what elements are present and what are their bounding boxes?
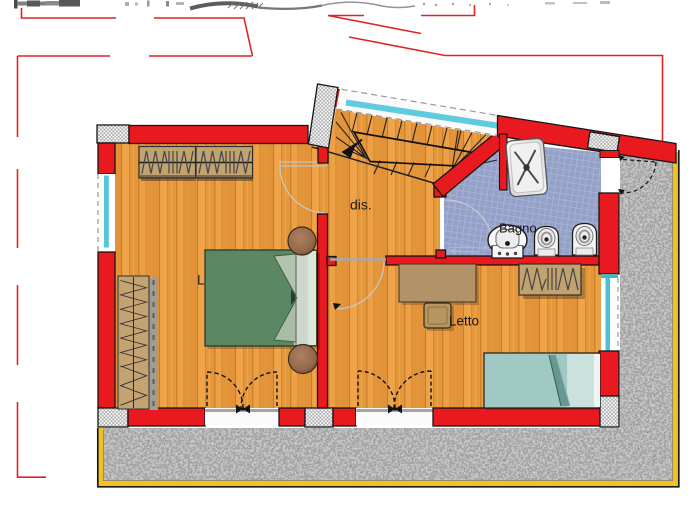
svg-text:Bagno: Bagno [499, 221, 537, 236]
svg-text:Letto: Letto [449, 314, 479, 329]
svg-text:dis.: dis. [350, 197, 372, 213]
